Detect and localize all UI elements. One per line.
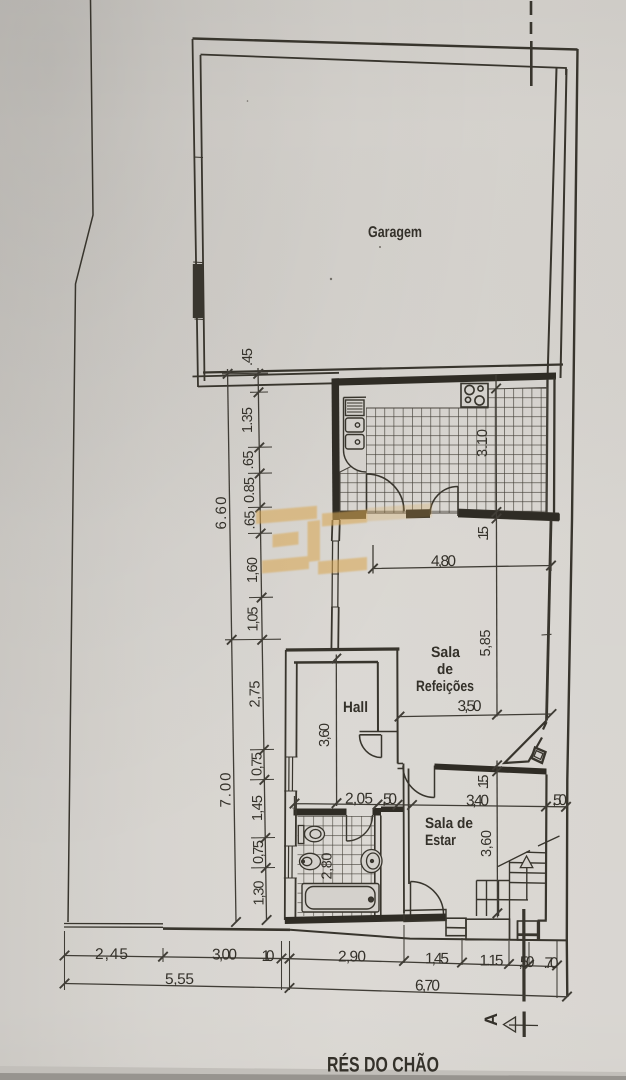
svg-text:de: de <box>437 661 453 678</box>
svg-text:2,45: 2,45 <box>95 946 128 963</box>
svg-text:A: A <box>481 1013 501 1026</box>
svg-text:2,75: 2,75 <box>248 681 264 708</box>
svg-text:.45: .45 <box>240 348 256 366</box>
svg-text:0.85: 0.85 <box>242 477 258 503</box>
svg-text:1,45: 1,45 <box>250 795 266 821</box>
svg-text:Hall: Hall <box>343 699 368 716</box>
svg-text:,50: ,50 <box>382 791 397 808</box>
svg-text:0,75: 0,75 <box>250 752 266 776</box>
svg-text:,50: ,50 <box>552 792 567 809</box>
svg-text:1,30: 1,30 <box>252 881 268 906</box>
svg-text:3,60: 3,60 <box>317 723 333 747</box>
svg-text:0,75: 0,75 <box>251 840 267 864</box>
svg-text:3,60: 3,60 <box>479 830 495 857</box>
svg-text:.70: .70 <box>544 955 559 972</box>
svg-text:1,45: 1,45 <box>425 951 449 968</box>
svg-text:3,00: 3,00 <box>212 947 237 964</box>
svg-text:Sala: Sala <box>431 644 461 661</box>
svg-text:2,80: 2,80 <box>320 853 336 880</box>
svg-text:1.35: 1.35 <box>240 407 256 433</box>
svg-text:.15: .15 <box>476 526 492 541</box>
svg-text:1.15: 1.15 <box>480 953 504 970</box>
svg-text:1,60: 1,60 <box>245 557 261 583</box>
svg-text:2,05: 2,05 <box>345 791 373 808</box>
svg-text:Refeições: Refeições <box>416 678 474 695</box>
svg-text:Sala de: Sala de <box>425 815 473 832</box>
svg-text:3,50: 3,50 <box>458 698 482 715</box>
svg-text:Estar: Estar <box>425 832 456 849</box>
svg-text:4,80: 4,80 <box>431 553 456 570</box>
svg-text:3.10: 3.10 <box>475 429 491 457</box>
svg-text:Garagem: Garagem <box>368 224 422 241</box>
svg-text:5,85: 5,85 <box>478 630 494 657</box>
svg-text:,50: ,50 <box>519 954 535 971</box>
svg-text:2,90: 2,90 <box>338 949 366 966</box>
svg-text:1,05: 1,05 <box>246 607 262 632</box>
svg-text:6,70: 6,70 <box>415 978 440 995</box>
svg-text:RÉS DO CHÃO: RÉS DO CHÃO <box>327 1053 439 1077</box>
svg-text:.65: .65 <box>241 451 257 470</box>
svg-text:7.00: 7.00 <box>218 773 235 808</box>
svg-text:.65: .65 <box>243 511 259 530</box>
svg-text:6.60: 6.60 <box>213 497 230 530</box>
svg-text:.10: .10 <box>262 948 275 965</box>
svg-text:3,40: 3,40 <box>466 793 489 810</box>
svg-text:5,55: 5,55 <box>165 971 194 988</box>
svg-text:.15: .15 <box>476 775 492 790</box>
